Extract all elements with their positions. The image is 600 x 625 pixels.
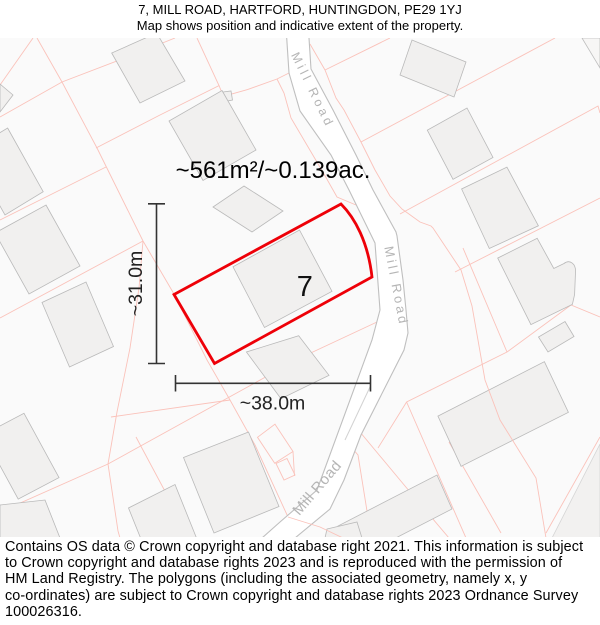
svg-text:~561m²/~0.139ac.: ~561m²/~0.139ac.: [176, 157, 371, 184]
svg-text:~38.0m: ~38.0m: [240, 393, 306, 415]
svg-text:7: 7: [297, 271, 313, 303]
svg-text:~31.0m: ~31.0m: [125, 251, 147, 317]
